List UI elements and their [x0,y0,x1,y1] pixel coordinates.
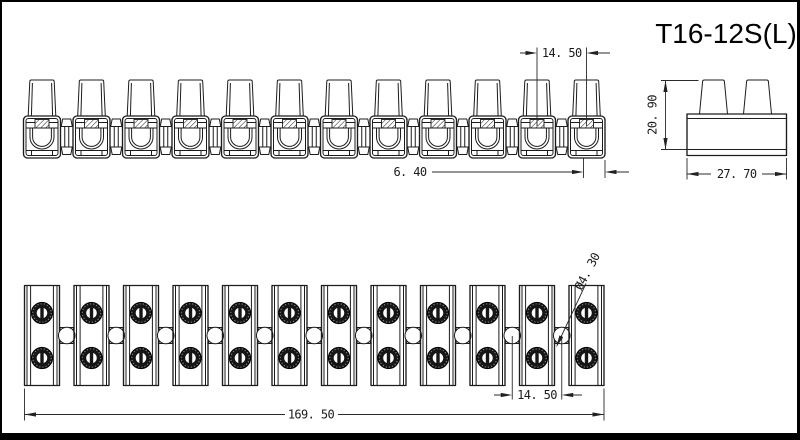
mount-hole-link [256,327,273,344]
screw-slot [387,352,390,363]
screw-icon [576,302,597,323]
screw-icon [477,302,498,323]
dim-wire-slot-label: 6. 40 [393,165,426,179]
screw-edge [283,120,297,129]
screw-slot [189,307,192,318]
screw-edge [431,120,445,129]
screw-slot [337,307,340,318]
mount-hole-link [58,327,75,344]
dim-pitch-bottom-label: 14. 50 [517,388,557,402]
screw-icon [526,302,547,323]
dim-total-length-label: 169. 50 [288,408,335,422]
screw-edge [184,120,198,129]
screw-icon [229,302,250,323]
screw-slot [387,307,390,318]
part-number-title: T16-12S(L) [655,18,797,49]
screw-slot [585,307,588,318]
screw-slot [40,352,43,363]
screw-slot [288,307,291,318]
screw-icon [526,347,547,368]
screw-edge [85,120,99,129]
screw-slot [535,307,538,318]
screw-icon [130,347,151,368]
screw-slot [535,352,538,363]
screw-slot [288,352,291,363]
screw-slot [238,307,241,318]
screw-slot [40,307,43,318]
mount-hole-link [405,327,422,344]
mount-hole-link [157,327,174,344]
screw-icon [477,347,498,368]
screw-icon [279,302,300,323]
screw-icon [427,347,448,368]
screw-icon [328,302,349,323]
screw-icon [378,347,399,368]
screw-icon [81,302,102,323]
screw-icon [427,302,448,323]
screw-icon [180,302,201,323]
screw-icon [378,302,399,323]
screw-slot [90,307,93,318]
dim-pitch-top-label: 14. 50 [542,46,582,60]
screw-icon [130,302,151,323]
screw-slot [337,352,340,363]
dim-height-label: 20. 90 [646,95,660,135]
screw-slot [139,352,142,363]
screw-icon [328,347,349,368]
mount-hole-link [355,327,372,344]
mount-hole-link [306,327,323,344]
screw-slot [486,307,489,318]
screw-slot [436,352,439,363]
screw-slot [585,352,588,363]
screw-edge [233,120,247,129]
screw-edge [481,120,495,129]
screw-slot [436,307,439,318]
screw-edge [382,120,396,129]
screw-slot [139,307,142,318]
screw-icon [576,347,597,368]
technical-drawing: 14. 50 6. 40 20. 90 27. 70 169. 50 14. 5… [0,0,800,440]
dim-depth-label: 27. 70 [717,167,757,181]
screw-edge [35,120,49,129]
screw-slot [90,352,93,363]
mount-hole-link [454,327,471,344]
screw-slot [189,352,192,363]
screw-slot [486,352,489,363]
screw-icon [279,347,300,368]
drawing-sheet: 14. 50 6. 40 20. 90 27. 70 169. 50 14. 5… [0,0,800,440]
mount-hole-link [108,327,125,344]
screw-icon [180,347,201,368]
screw-icon [31,347,52,368]
screw-slot [238,352,241,363]
screw-icon [31,302,52,323]
screw-icon [229,347,250,368]
screw-edge [134,120,148,129]
screw-icon [81,347,102,368]
screw-edge [332,120,346,129]
mount-hole-link [207,327,224,344]
